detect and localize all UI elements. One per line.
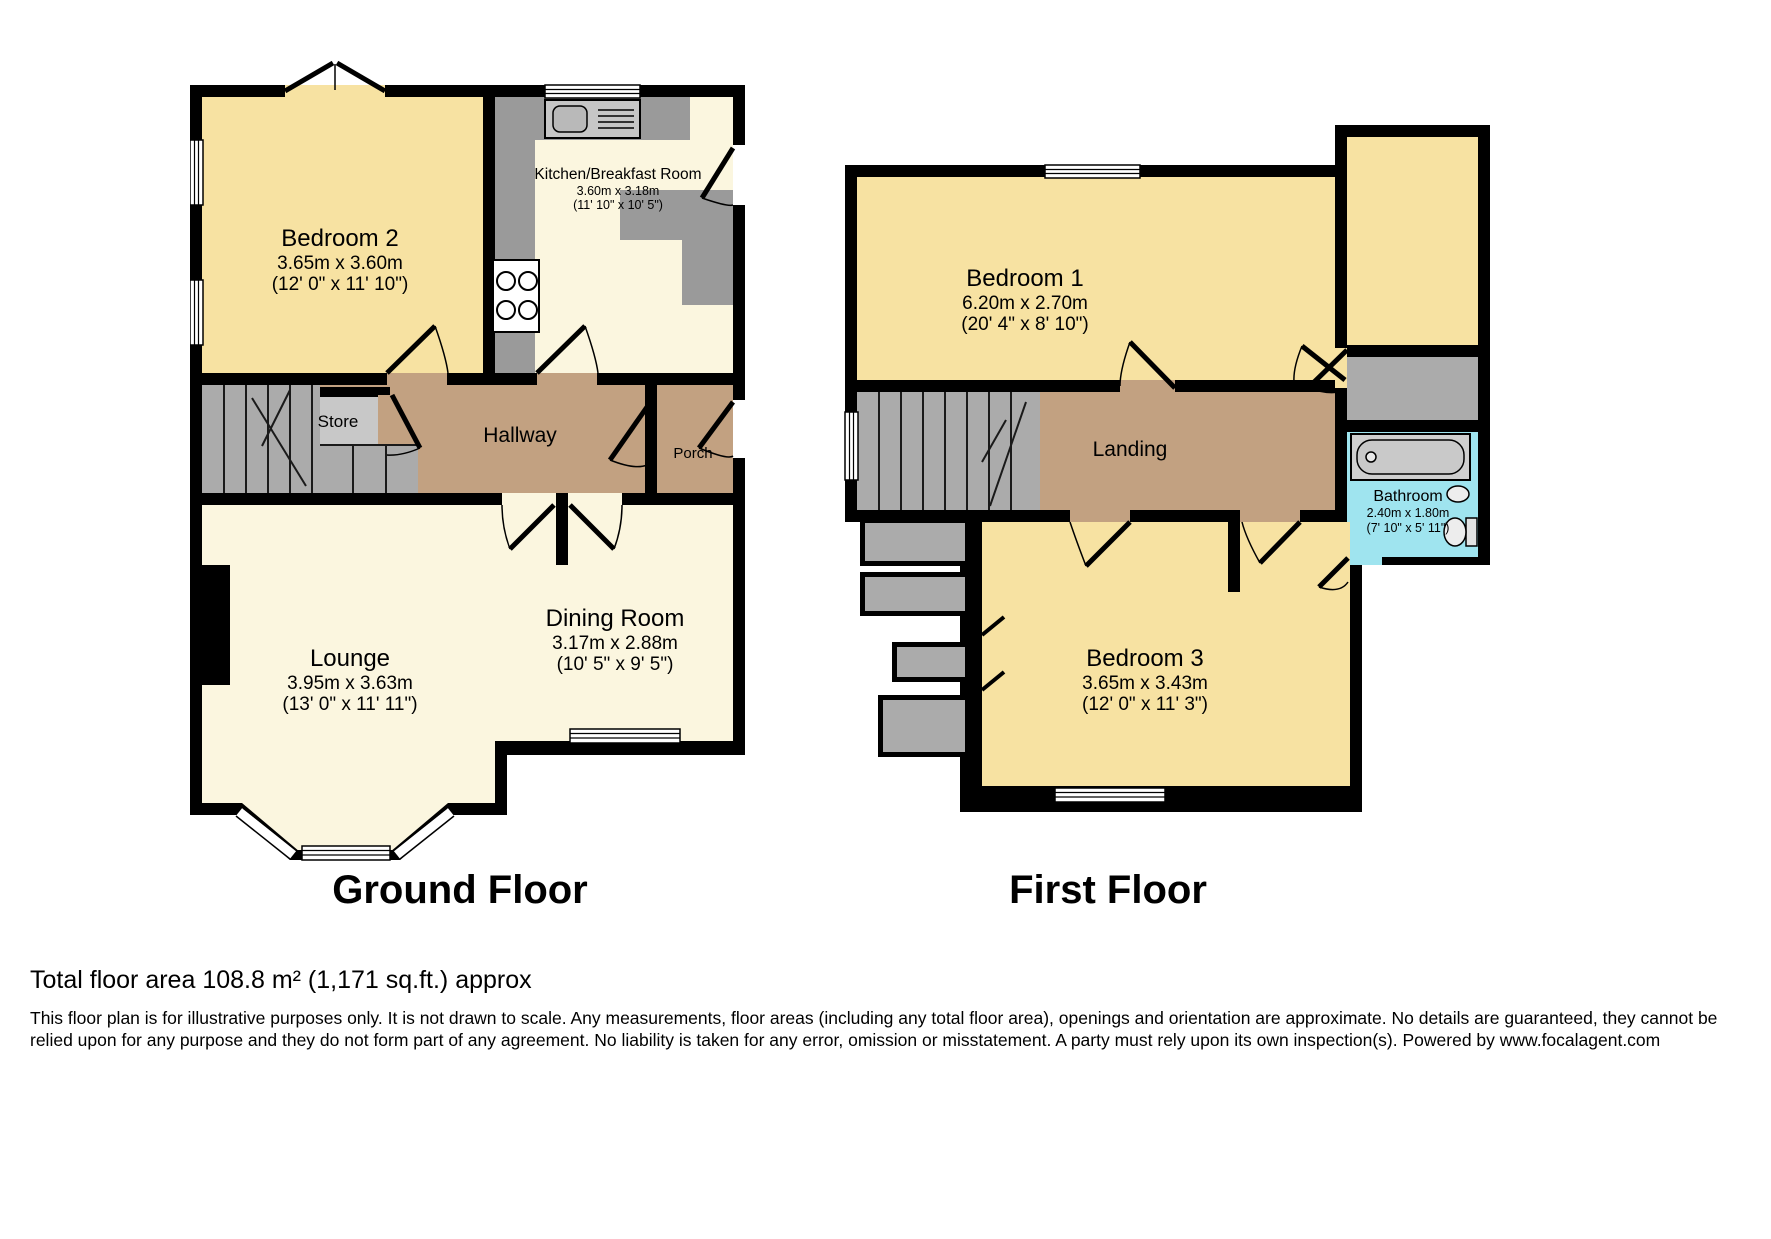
bathroom-door-gap — [1350, 557, 1382, 565]
room-name: Bedroom 2 — [272, 225, 409, 253]
room-dims-ft: (11' 10" x 10' 5") — [534, 198, 701, 212]
lounge-door-gap — [502, 493, 556, 505]
kitchen-counter-left — [495, 140, 535, 373]
room-name: Bathroom — [1367, 488, 1450, 506]
kitchen-counter-top — [495, 97, 690, 140]
bedroom1-label: Bedroom 1 6.20m x 2.70m (20' 4" x 8' 10"… — [961, 265, 1088, 336]
room-name: Bedroom 3 — [1082, 645, 1208, 673]
store-door-gap — [378, 395, 390, 449]
bedroom2-french-opening — [285, 85, 385, 98]
room-dims-m: 6.20m x 2.70m — [961, 293, 1088, 315]
porch-frontdoor-gap — [733, 400, 745, 458]
room-name: Dining Room — [546, 605, 685, 633]
room-dims-ft: (12' 0" x 11' 3") — [1082, 694, 1208, 716]
room-dims-ft: (7' 10" x 5' 11") — [1367, 521, 1450, 535]
room-dims-m: 2.40m x 1.80m — [1367, 506, 1450, 520]
room-name: Bedroom 1 — [961, 265, 1088, 293]
eaves-storage — [892, 642, 970, 682]
room-porch — [657, 385, 733, 493]
first-floor-plan: Bedroom 1 6.20m x 2.70m (20' 4" x 8' 10"… — [830, 120, 1500, 920]
bedroom2-label: Bedroom 2 3.65m x 3.60m (12' 0" x 11' 10… — [272, 225, 409, 296]
wardrobe-storage — [1347, 357, 1478, 420]
staircase-first — [857, 392, 1040, 510]
room-dims-m: 3.60m x 3.18m — [534, 184, 701, 198]
bedroom3-partial-wall — [1228, 522, 1240, 592]
room-dims-m: 3.65m x 3.60m — [272, 253, 409, 275]
dining-label: Dining Room 3.17m x 2.88m (10' 5" x 9' 5… — [546, 605, 685, 676]
eaves-storage — [878, 695, 970, 757]
bedroom3-label: Bedroom 3 3.65m x 3.43m (12' 0" x 11' 3"… — [1082, 645, 1208, 716]
room-dims-m: 3.17m x 2.88m — [546, 633, 685, 655]
ground-floor-plan: Bedroom 2 3.65m x 3.60m (12' 0" x 11' 10… — [190, 60, 750, 920]
floorplan-page: { "floors": { "ground": { "label": "Grou… — [0, 0, 1771, 1239]
lounge-label: Lounge 3.95m x 3.63m (13' 0" x 11' 11") — [282, 645, 417, 716]
porch-label: Porch — [673, 445, 712, 462]
room-dims-ft: (13' 0" x 11' 11") — [282, 694, 417, 716]
staircase-ground — [202, 385, 320, 493]
room-dims-m: 3.95m x 3.63m — [282, 673, 417, 695]
room-dims-ft: (12' 0" x 11' 10") — [272, 274, 409, 296]
bedroom2-door-gap — [387, 373, 447, 385]
room-name: Lounge — [282, 645, 417, 673]
room-bedroom-1 — [857, 177, 1335, 380]
kitchen-label: Kitchen/Breakfast Room 3.60m x 3.18m (11… — [534, 166, 701, 213]
room-dims-ft: (20' 4" x 8' 10") — [961, 314, 1088, 336]
eaves-storage — [860, 518, 970, 566]
landing-label: Landing — [1093, 438, 1168, 462]
kitchen-peninsula-leg — [682, 240, 733, 305]
store-label: Store — [318, 412, 359, 432]
bedroom1-door-gap — [1120, 380, 1175, 392]
first-floor-title: First Floor — [1009, 868, 1207, 913]
hallway-label: Hallway — [483, 424, 557, 448]
dining-door-gap — [568, 493, 622, 505]
disclaimer-text: This floor plan is for illustrative purp… — [30, 1008, 1742, 1051]
staircase-ground-lower — [320, 445, 418, 493]
eaves-storage — [860, 572, 970, 616]
bedroom3-door2-gap — [1240, 510, 1300, 522]
ground-floor-title: Ground Floor — [332, 868, 588, 913]
rightwing-door-gap — [1335, 348, 1347, 388]
room-name: Kitchen/Breakfast Room — [534, 166, 701, 184]
kitchen-backdoor-gap — [733, 145, 745, 205]
room-dims-ft: (10' 5" x 9' 5") — [546, 654, 685, 676]
kitchen-door-gap — [537, 373, 597, 385]
room-dims-m: 3.65m x 3.43m — [1082, 673, 1208, 695]
total-floor-area: Total floor area 108.8 m² (1,171 sq.ft.)… — [30, 966, 532, 995]
bedroom3-door-gap — [1070, 510, 1130, 522]
chimney-breast — [202, 565, 230, 685]
bathroom-label: Bathroom 2.40m x 1.80m (7' 10" x 5' 11") — [1367, 488, 1450, 535]
room-top-right — [1347, 137, 1478, 345]
